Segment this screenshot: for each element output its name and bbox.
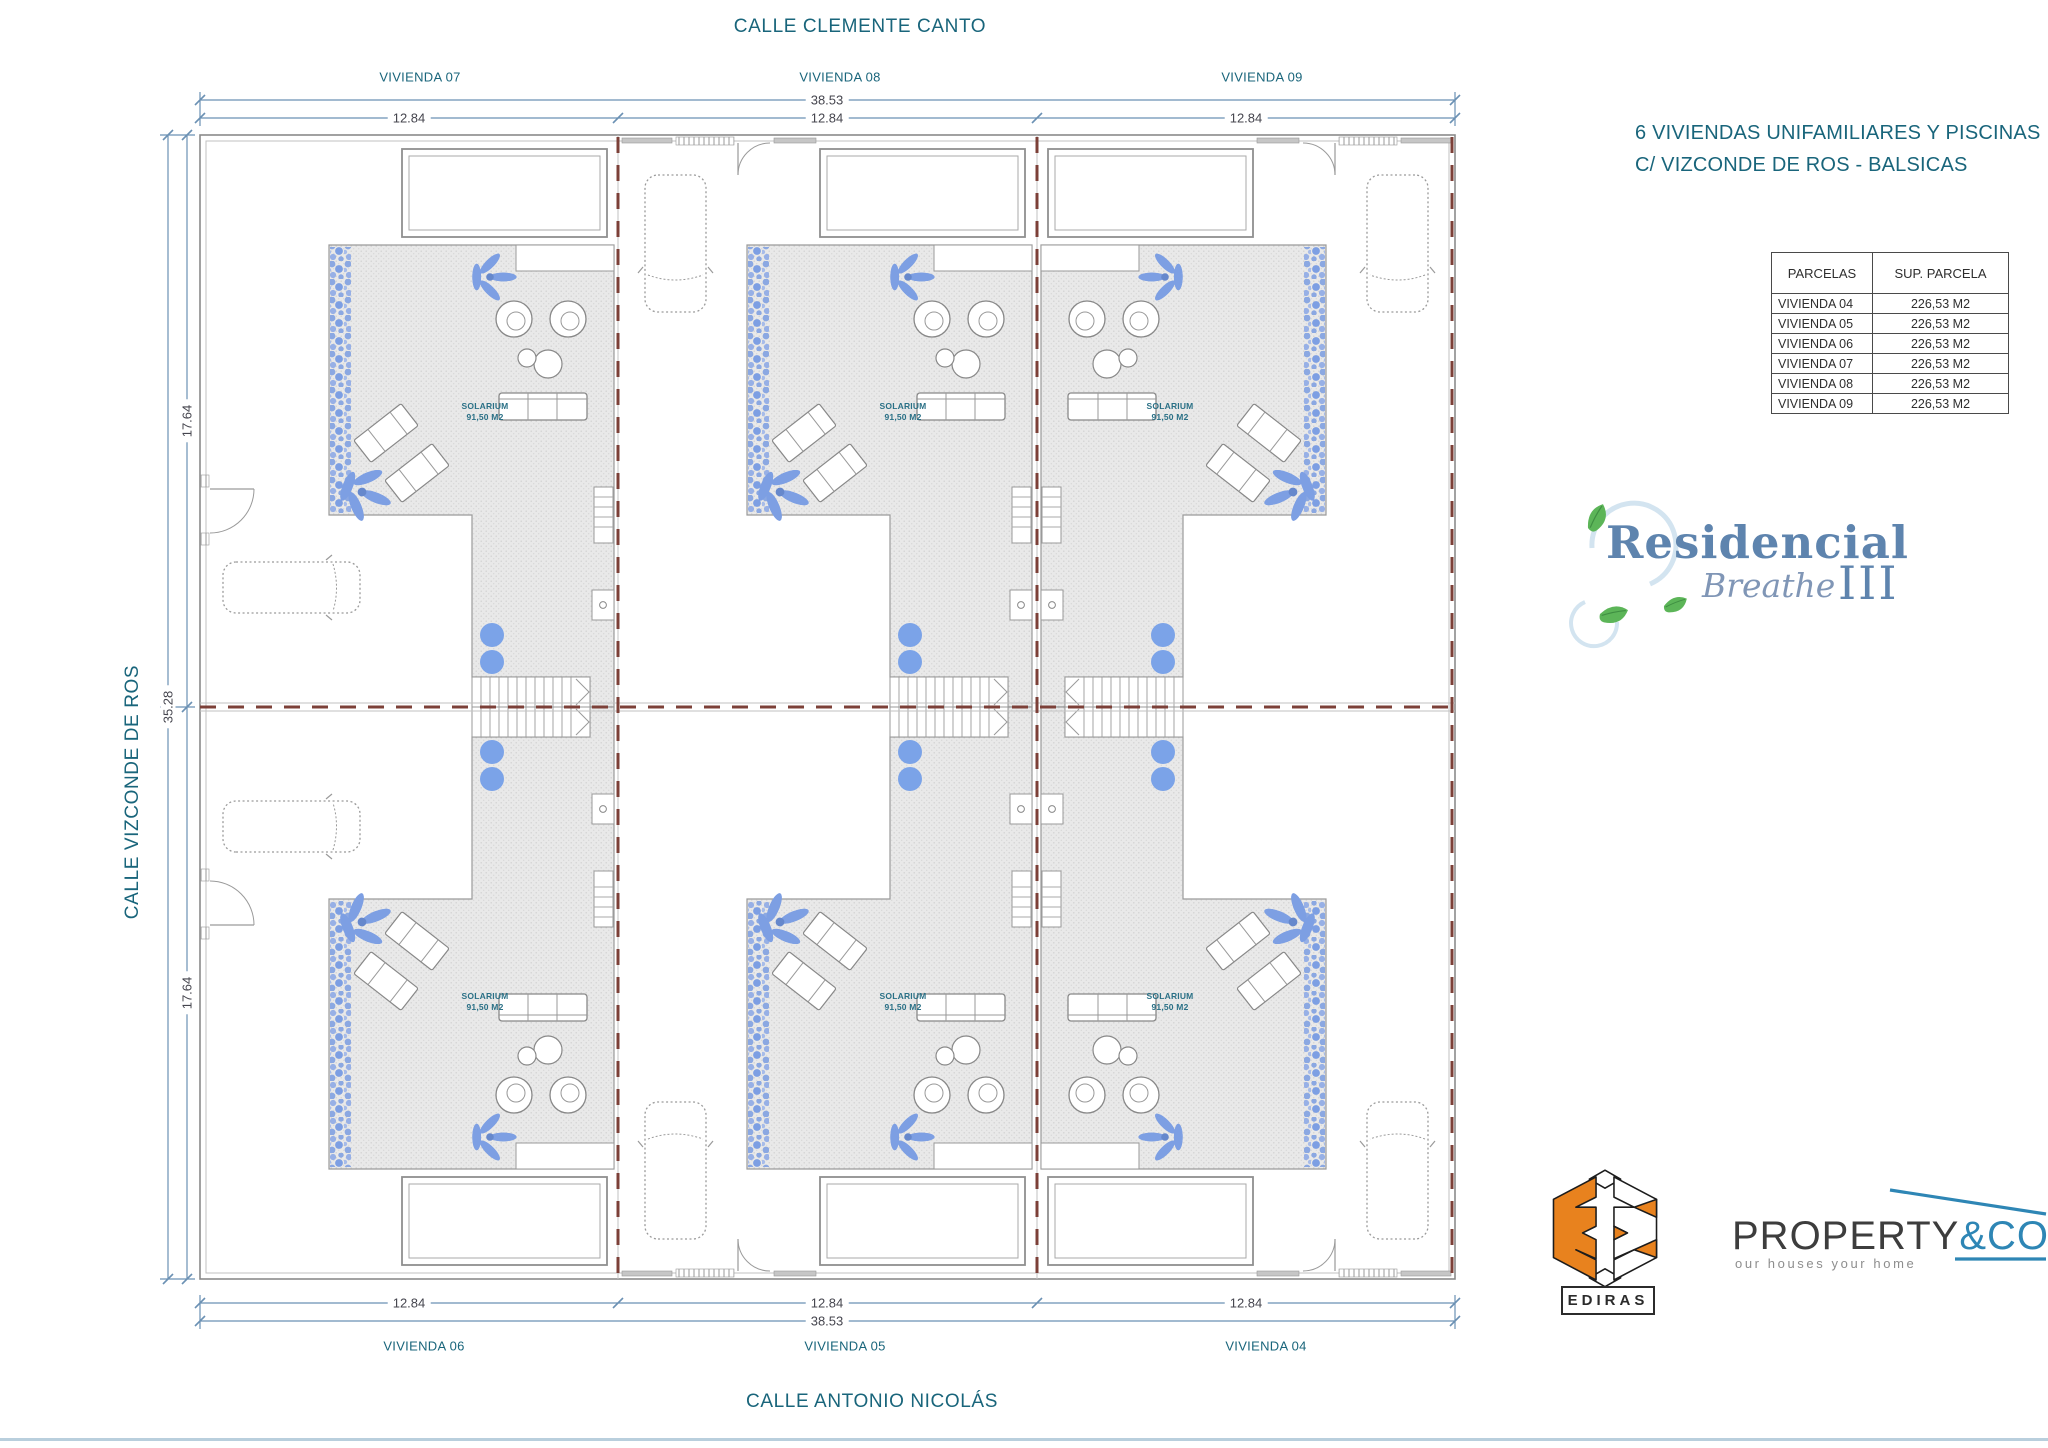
table-row: VIVIENDA 06 226,53 M2	[1772, 334, 2009, 354]
parcel-area: 226,53 M2	[1873, 394, 2009, 414]
brand-numeral: III	[1838, 556, 1899, 610]
footer-rule	[0, 1438, 2048, 1441]
project-title-line2: C/ VIZCONDE DE ROS - BALSICAS	[1635, 154, 1968, 177]
unit-vivienda-09	[1041, 137, 1451, 707]
parcel-area: 226,53 M2	[1873, 374, 2009, 394]
dim-unit-width-top-3: 12.84	[1225, 111, 1268, 126]
unit-label-vivienda-05: VIVIENDA 05	[804, 1339, 885, 1354]
ediras-logo-label: EDIRAS	[1561, 1286, 1655, 1315]
property-name: PROPERTY	[1732, 1214, 1959, 1258]
parcel-name: VIVIENDA 05	[1772, 314, 1873, 334]
street-name-top: CALLE CLEMENTE CANTO	[734, 16, 986, 38]
dim-unit-width-bottom-1: 12.84	[388, 1296, 431, 1311]
parcel-area: 226,53 M2	[1873, 314, 2009, 334]
table-row: VIVIENDA 08 226,53 M2	[1772, 374, 2009, 394]
property-tagline: our houses your home	[1735, 1256, 1916, 1271]
parcels-table: PARCELAS SUP. PARCELA VIVIENDA 04 226,53…	[1771, 252, 2009, 414]
solarium-label-07: SOLARIUM 91,50 M2	[462, 401, 509, 423]
dim-unit-width-top-2: 12.84	[806, 111, 849, 126]
unit-label-vivienda-08: VIVIENDA 08	[799, 70, 880, 85]
property-logo-text: PROPERTY&CO	[1732, 1214, 2048, 1259]
parcel-name: VIVIENDA 06	[1772, 334, 1873, 354]
unit-vivienda-06	[201, 707, 614, 1265]
floor-plan-sheet: CALLE CLEMENTE CANTO CALLE VIZCONDE DE R…	[0, 0, 2048, 1448]
parcel-name: VIVIENDA 07	[1772, 354, 1873, 374]
parcels-header-area: SUP. PARCELA	[1873, 253, 2009, 294]
property-amp: &CO	[1959, 1214, 2048, 1258]
ediras-logo-mark	[1553, 1170, 1656, 1286]
project-title-line1: 6 VIVIENDAS UNIFAMILIARES Y PISCINAS	[1635, 122, 2040, 145]
parcel-name: VIVIENDA 04	[1772, 294, 1873, 314]
dim-unit-width-top-1: 12.84	[388, 111, 431, 126]
parcel-name: VIVIENDA 09	[1772, 394, 1873, 414]
dim-half-depth-upper: 17.64	[180, 400, 195, 443]
unit-vivienda-05	[622, 707, 1032, 1277]
table-row: VIVIENDA 04 226,53 M2	[1772, 294, 2009, 314]
parcels-header-name: PARCELAS	[1772, 253, 1873, 294]
street-name-bottom: CALLE ANTONIO NICOLÁS	[746, 1391, 998, 1413]
dim-unit-width-bottom-2: 12.84	[806, 1296, 849, 1311]
table-row: VIVIENDA 09 226,53 M2	[1772, 394, 2009, 414]
parcel-name: VIVIENDA 08	[1772, 374, 1873, 394]
brand-script: Breathe	[1702, 566, 1835, 605]
unit-label-vivienda-09: VIVIENDA 09	[1221, 70, 1302, 85]
solarium-label-05: SOLARIUM 91,50 M2	[880, 991, 927, 1013]
unit-label-vivienda-04: VIVIENDA 04	[1225, 1339, 1306, 1354]
table-row: VIVIENDA 05 226,53 M2	[1772, 314, 2009, 334]
parcel-area: 226,53 M2	[1873, 334, 2009, 354]
dim-half-depth-lower: 17.64	[180, 972, 195, 1015]
table-row: VIVIENDA 07 226,53 M2	[1772, 354, 2009, 374]
parcel-area: 226,53 M2	[1873, 354, 2009, 374]
dim-total-width-top: 38.53	[806, 93, 849, 108]
unit-label-vivienda-07: VIVIENDA 07	[379, 70, 460, 85]
unit-vivienda-08	[622, 137, 1032, 707]
dim-unit-width-bottom-3: 12.84	[1225, 1296, 1268, 1311]
unit-vivienda-07	[201, 149, 614, 707]
solarium-label-09: SOLARIUM 91,50 M2	[1147, 401, 1194, 423]
solarium-label-04: SOLARIUM 91,50 M2	[1147, 991, 1194, 1013]
solarium-label-06: SOLARIUM 91,50 M2	[462, 991, 509, 1013]
unit-vivienda-04	[1041, 707, 1451, 1277]
solarium-label-08: SOLARIUM 91,50 M2	[880, 401, 927, 423]
parcel-area: 226,53 M2	[1873, 294, 2009, 314]
unit-label-vivienda-06: VIVIENDA 06	[383, 1339, 464, 1354]
street-name-left: CALLE VIZCONDE DE ROS	[122, 665, 144, 919]
parcels-table-header-row: PARCELAS SUP. PARCELA	[1772, 253, 2009, 294]
dim-total-depth-left: 35.28	[161, 686, 176, 729]
dim-total-width-bottom: 38.53	[806, 1314, 849, 1329]
